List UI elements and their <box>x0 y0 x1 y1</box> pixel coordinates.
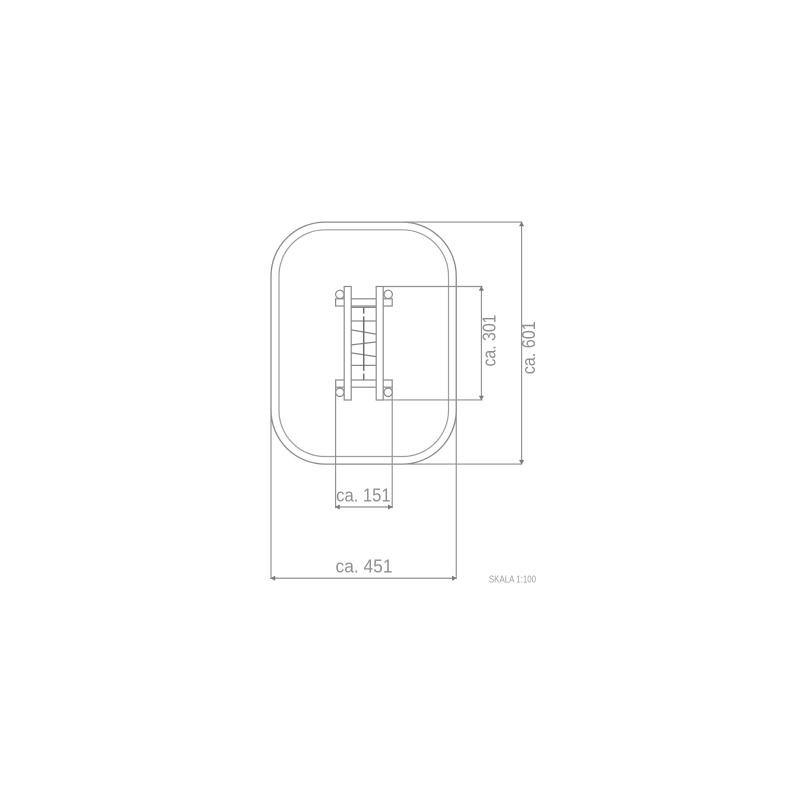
svg-text:SKALA 1:100: SKALA 1:100 <box>489 575 537 586</box>
svg-text:ca. 601: ca. 601 <box>519 321 539 374</box>
svg-text:ca. 451: ca. 451 <box>336 556 393 576</box>
svg-text:ca. 151: ca. 151 <box>336 486 391 506</box>
svg-text:ca. 301: ca. 301 <box>479 314 499 366</box>
